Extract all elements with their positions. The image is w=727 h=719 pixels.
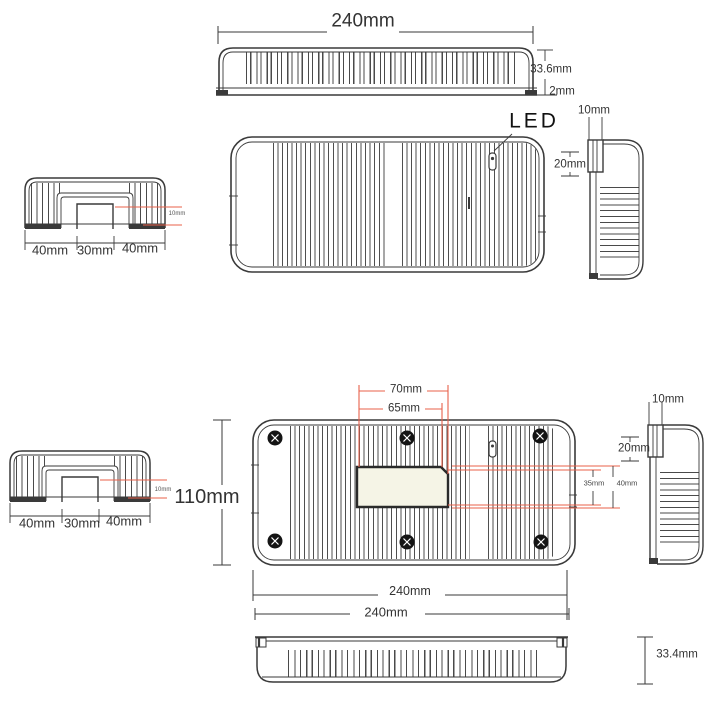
upper-profile-view: [25, 178, 182, 250]
lower-end-tab-width-label: 10mm: [652, 394, 684, 406]
upper-end-tab-depth-label: 20mm: [554, 159, 586, 171]
lower-profile-center-label: 30mm: [64, 517, 100, 530]
front-width-label: 240mm: [331, 12, 394, 31]
upper-end-view: [561, 117, 643, 279]
body-height-label: 110mm: [174, 487, 239, 507]
front-base-label: 2mm: [549, 86, 575, 98]
upper-profile-left-label: 40mm: [32, 244, 68, 257]
cutout-inner-height-label: 35mm: [584, 479, 605, 487]
lower-end-tab-depth-label: 20mm: [618, 443, 650, 455]
bottom-elevation-view: [255, 637, 653, 684]
driver-cutout: [357, 467, 448, 507]
technical-drawing-sheet: 240mm 33.6mm 2mm LED 10mm 20mm 10mm 40mm…: [0, 0, 727, 719]
upper-profile-foot-label: 10mm: [169, 211, 186, 217]
upper-profile-center-label: 30mm: [77, 244, 113, 257]
led-indicator: [489, 153, 496, 170]
front-elevation-view: [216, 26, 557, 95]
lower-profile-left-label: 40mm: [19, 517, 55, 530]
upper-profile-right-label: 40mm: [122, 242, 158, 255]
upper-plan-view: [229, 134, 546, 272]
front-height-label: 33.6mm: [530, 64, 572, 76]
upper-end-tab-width-label: 10mm: [578, 105, 610, 117]
cutout-inner-width-label: 65mm: [388, 403, 420, 415]
cutout-outer-height-label: 40mm: [617, 479, 638, 487]
led-label: LED: [509, 111, 559, 132]
led-indicator-lower: [489, 441, 496, 457]
lower-profile-right-label: 40mm: [106, 515, 142, 528]
base-width-label: 240mm: [389, 585, 431, 598]
overall-width-label: 240mm: [364, 606, 407, 619]
bottom-height-label: 33.4mm: [656, 649, 698, 661]
lower-profile-view: [10, 451, 167, 523]
cutout-outer-width-label: 70mm: [390, 384, 422, 396]
lower-profile-foot-label: 10mm: [155, 487, 172, 493]
